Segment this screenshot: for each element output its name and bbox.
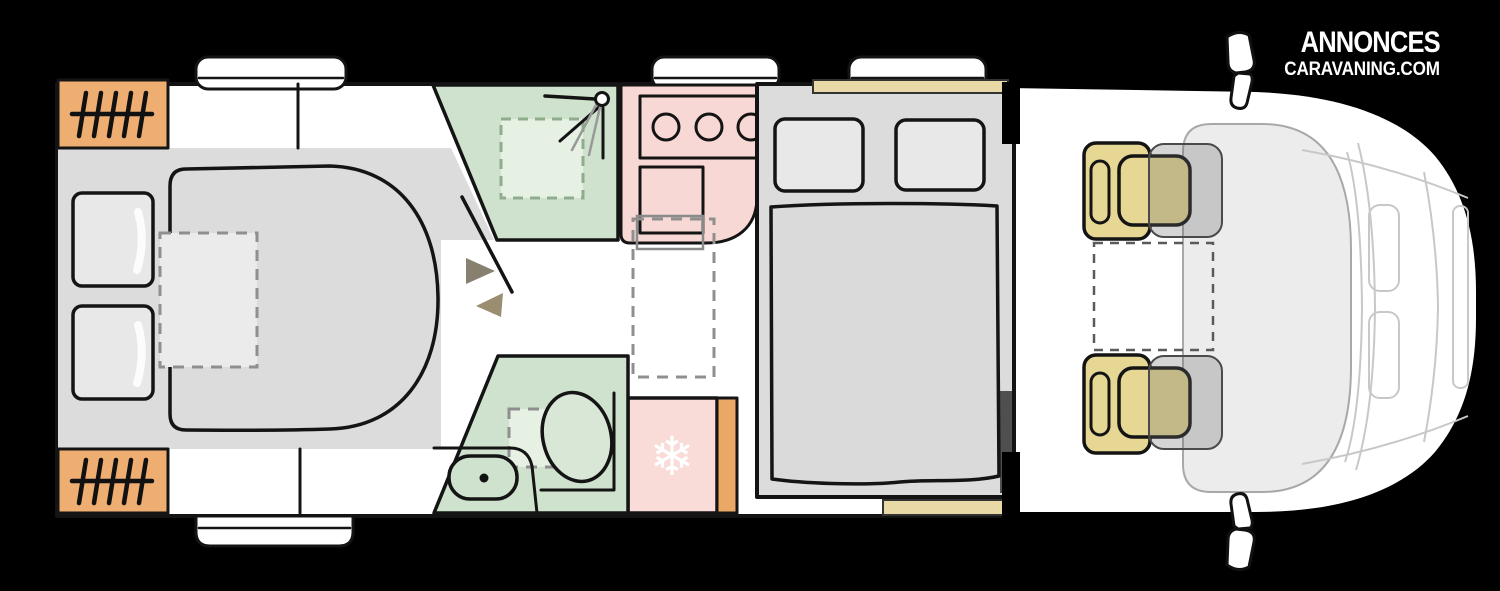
seat-ghost-position xyxy=(1149,144,1222,237)
seat-armrest xyxy=(1091,373,1109,435)
heater-block-bottom xyxy=(58,449,168,513)
junction-wall-top xyxy=(1002,82,1020,144)
kitchen-sink xyxy=(640,167,703,233)
passenger-seat xyxy=(1084,355,1222,453)
seat-ghost-position xyxy=(1149,356,1222,449)
watermark-logo: ANNONCES CARAVANING.COM xyxy=(1267,28,1440,79)
bed-overhead-dashed xyxy=(160,233,257,367)
watermark-line2: CARAVANING.COM xyxy=(1285,60,1440,79)
pillow xyxy=(73,306,153,399)
snowflake-icon: ❄ xyxy=(649,427,694,487)
driver-seat xyxy=(1084,143,1222,239)
floorplan-canvas: ❄ xyxy=(0,0,1500,591)
overhead-locker-top xyxy=(813,80,1008,93)
pillow xyxy=(73,193,153,286)
overhead-locker-bottom xyxy=(883,500,1012,515)
watermark-line1: ANNONCES xyxy=(1293,28,1440,58)
junction-wall-bottom xyxy=(1002,452,1020,518)
seat-armrest xyxy=(1091,161,1109,223)
fridge-side-cabinet xyxy=(717,398,737,513)
central-bed-block xyxy=(757,84,1014,497)
window-rear-bottom xyxy=(196,516,353,546)
heater-block-top xyxy=(58,80,168,148)
kitchen-block xyxy=(621,85,764,249)
mattress xyxy=(771,204,999,484)
fridge: ❄ xyxy=(628,398,737,513)
motorhome-floorplan: ❄ xyxy=(0,0,1500,591)
pillow xyxy=(896,120,984,190)
pillow xyxy=(775,119,863,191)
washbasin-drain xyxy=(480,474,489,483)
skylight-window-rear xyxy=(196,57,346,89)
